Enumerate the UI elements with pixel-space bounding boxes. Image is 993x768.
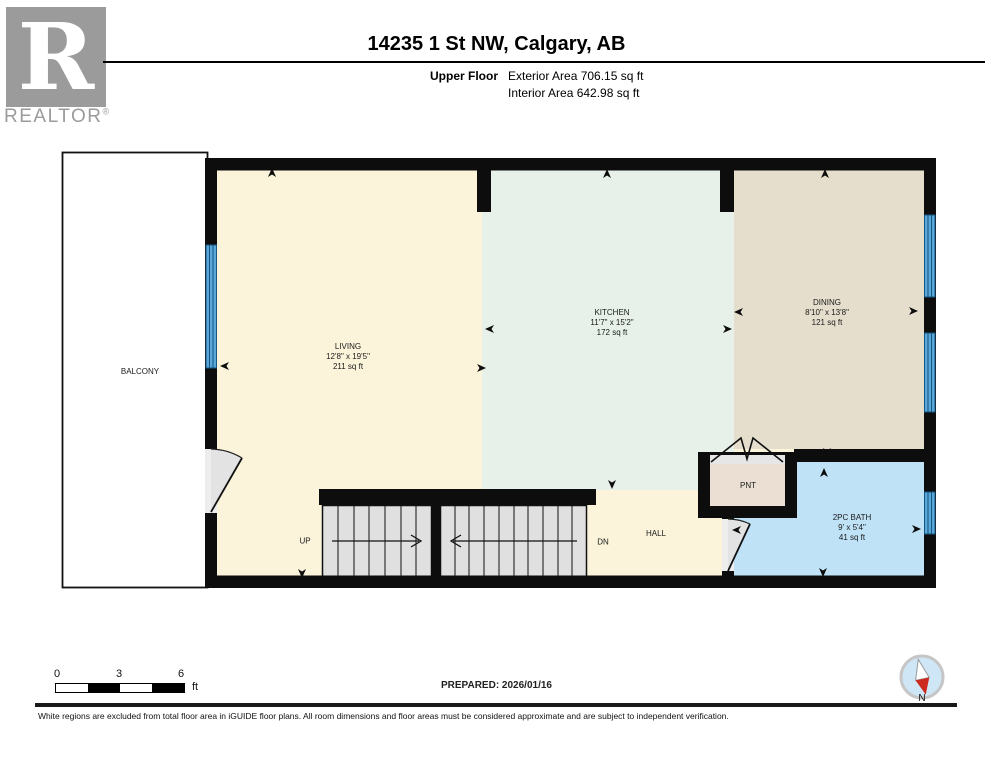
bath-window (925, 492, 936, 534)
living-window (206, 245, 217, 368)
bath-area (734, 462, 924, 576)
room-label-bath: 2PC BATH 9' x 5'4" 41 sq ft (833, 513, 872, 543)
footer-divider (35, 703, 957, 707)
floorplan-page: R REALTOR® 14235 1 St NW, Calgary, AB Up… (0, 0, 993, 768)
room-label-balcony: BALCONY (121, 367, 159, 377)
room-label-dining: DINING 8'10" x 13'8" 121 sq ft (805, 298, 849, 328)
windows (206, 215, 935, 534)
living-room-area (217, 170, 924, 576)
floor-label: Upper Floor (298, 69, 498, 83)
stairs (319, 489, 596, 577)
title-divider (103, 61, 985, 63)
room-label-kitchen: KITCHEN 11'7" x 15'2" 172 sq ft (590, 308, 633, 338)
walls (205, 158, 936, 588)
dining-window-upper (925, 215, 936, 297)
balcony-door (205, 449, 242, 513)
scale-tick-3: 3 (116, 668, 122, 680)
stair-direction-arrows (332, 535, 577, 547)
pantry-bifold-door (711, 438, 783, 462)
scale-tick-0: 0 (54, 668, 60, 680)
room-label-pantry: PNT (740, 481, 756, 491)
realtor-logo-letter: R (18, 11, 94, 103)
measurement-arrows (220, 168, 921, 578)
stairs-up-label: UP (299, 537, 310, 546)
realtor-brand: REALTOR® (4, 106, 122, 128)
exterior-area: Exterior Area 706.15 sq ft (508, 69, 643, 83)
room-label-hall: HALL (646, 529, 666, 539)
dining-window-lower (925, 333, 936, 412)
interior-area: Interior Area 642.98 sq ft (508, 86, 639, 100)
room-label-living: LIVING 12'8" x 19'5" 211 sq ft (326, 342, 370, 372)
stairs-dn-label: DN (597, 538, 609, 547)
scale-tick-6: 6 (178, 668, 184, 680)
page-title: 14235 1 St NW, Calgary, AB (0, 33, 993, 56)
disclaimer-text: White regions are excluded from total fl… (38, 711, 968, 721)
prepared-date: PREPARED: 2026/01/16 (0, 680, 993, 691)
pantry (698, 438, 797, 518)
realtor-logo: R (6, 7, 106, 107)
registered-mark: ® (103, 107, 110, 117)
bath-door (722, 519, 750, 571)
